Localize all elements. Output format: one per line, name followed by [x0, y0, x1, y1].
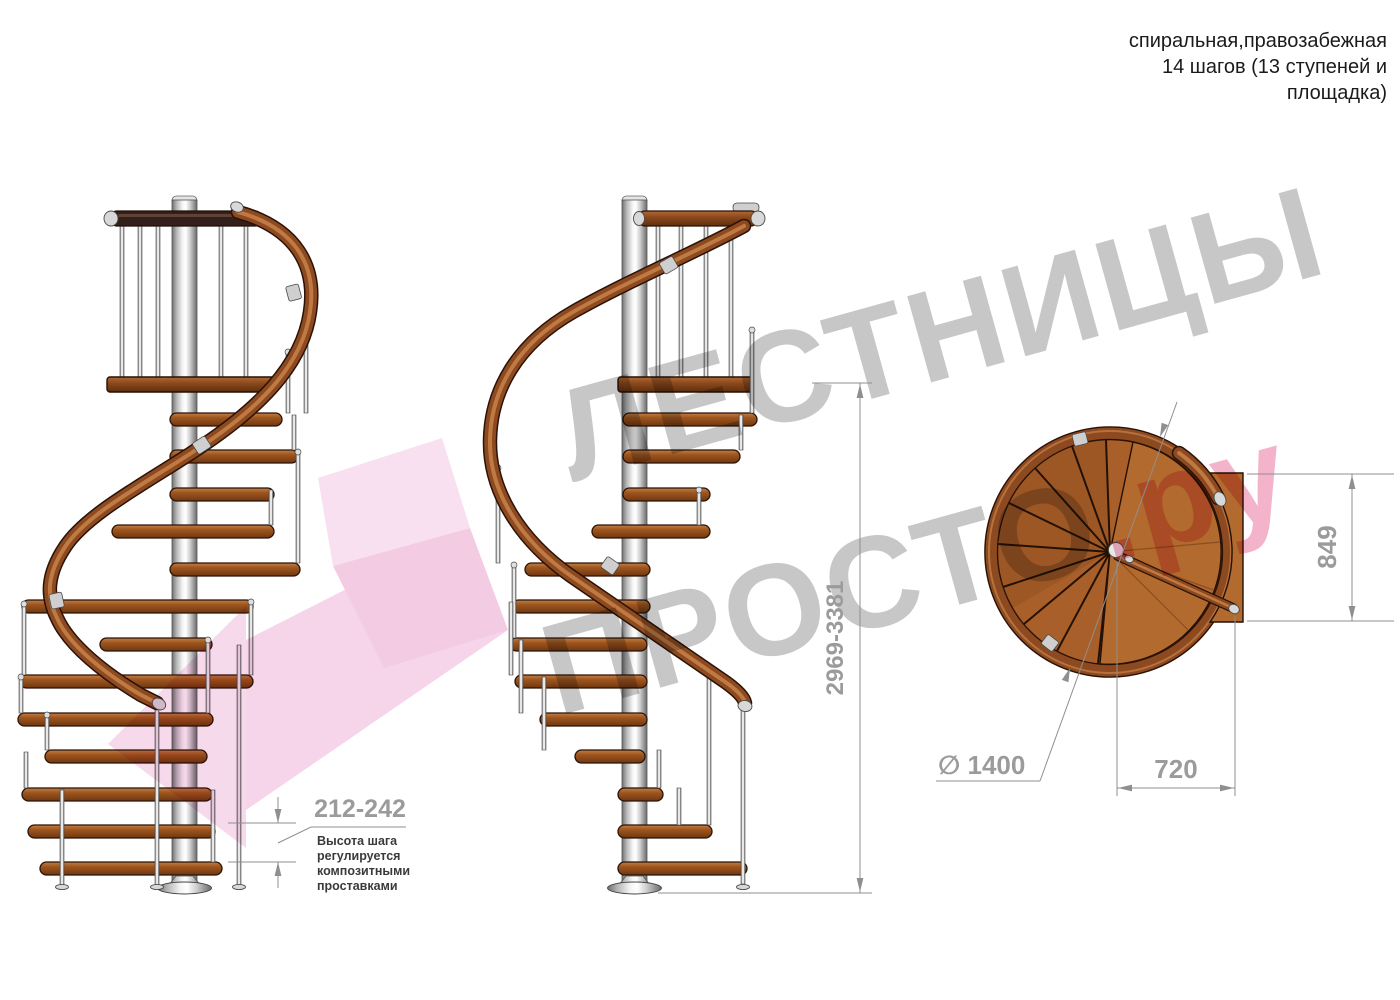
baluster-rod — [509, 602, 513, 675]
baluster-rod — [24, 752, 28, 788]
tread — [170, 563, 300, 576]
baluster-rod — [60, 790, 64, 886]
handrail-end-cap — [634, 212, 645, 226]
tread — [28, 825, 215, 838]
railing-baluster — [156, 226, 160, 377]
title-line-2: 14 шагов (13 ступеней и — [1129, 54, 1387, 80]
handrail-end-cap — [751, 211, 765, 226]
rod-joint — [511, 562, 517, 568]
baluster-rod — [292, 415, 296, 450]
center-pole — [622, 200, 647, 890]
rod-foot — [151, 884, 164, 889]
tread — [618, 788, 663, 801]
baluster-rod — [19, 677, 23, 713]
baluster-rod — [269, 490, 273, 525]
arrow-down-icon — [857, 878, 864, 892]
arrow-left-icon — [1118, 785, 1132, 792]
arrow-up-icon — [1349, 475, 1356, 489]
tread — [618, 862, 747, 875]
platform-depth-dimension: 849 — [1312, 525, 1342, 568]
rod-joint — [21, 601, 27, 607]
rod-joint — [18, 674, 24, 680]
title-line-1: спиральная,правозабежная — [1129, 28, 1387, 54]
tread — [170, 488, 274, 501]
rod-joint — [696, 487, 702, 493]
baluster-rod — [542, 677, 546, 750]
stair-side-view-front — [490, 196, 765, 894]
railing-baluster — [120, 226, 124, 377]
step-note-line: композитными — [317, 864, 410, 878]
arrow-down-icon — [1349, 606, 1356, 620]
baluster-rod — [697, 490, 701, 525]
handrail-sleeve — [285, 284, 301, 302]
handrail-end-cap — [104, 211, 118, 226]
watermark-layer: ЛЕСТНИЦЫ ПРОСТО.ру — [108, 157, 1340, 848]
rod-joint — [248, 599, 254, 605]
baluster-rod — [657, 750, 661, 788]
rod-foot — [737, 884, 750, 889]
tread — [40, 862, 222, 875]
total-height-dimension: 2969-3381 — [822, 581, 849, 696]
baluster-rod — [22, 604, 26, 675]
rod-foot — [56, 884, 69, 889]
pole-base-flange — [158, 882, 212, 894]
rod-foot — [233, 884, 246, 889]
railing-baluster — [244, 226, 248, 377]
diameter-dimension: ∅ 1400 — [938, 750, 1025, 780]
baluster-rod — [741, 706, 745, 884]
tread — [100, 638, 212, 651]
tread — [592, 525, 710, 538]
arrow-diameter-bottom-icon — [1062, 668, 1070, 682]
tread — [575, 750, 645, 763]
staircase-technical-drawing: ЛЕСТНИЦЫ ПРОСТО.ру 2969-3381 212-242 Выс… — [0, 0, 1400, 1000]
step-note-line: регулируется — [317, 849, 400, 863]
railing-baluster — [219, 226, 223, 377]
handrail-sleeve — [49, 592, 65, 609]
baluster-rod — [519, 640, 523, 713]
drawing-title: спиральная,правозабежная 14 шагов (13 ст… — [1129, 28, 1387, 106]
walkline-dimension: 720 — [1154, 754, 1197, 784]
title-line-3: площадка) — [1129, 80, 1387, 106]
arrow-right-icon — [1220, 785, 1234, 792]
step-height-dimension: 212-242 — [314, 795, 406, 823]
step-note-line: Высота шага — [317, 834, 398, 848]
railing-baluster — [138, 226, 142, 377]
arrow-up-icon — [275, 862, 282, 876]
arrow-down-icon — [275, 809, 282, 823]
baluster-rod — [296, 452, 300, 563]
watermark-text-suffix: .ру — [1077, 397, 1307, 591]
step-note-line: проставками — [317, 879, 398, 893]
pole-base-flange — [608, 882, 662, 894]
rod-joint — [44, 712, 50, 718]
rod-joint — [295, 449, 301, 455]
baluster-rod — [45, 715, 49, 750]
tread — [618, 825, 712, 838]
tread — [112, 525, 274, 538]
baluster-rod — [677, 788, 681, 825]
top-platform — [107, 377, 277, 392]
